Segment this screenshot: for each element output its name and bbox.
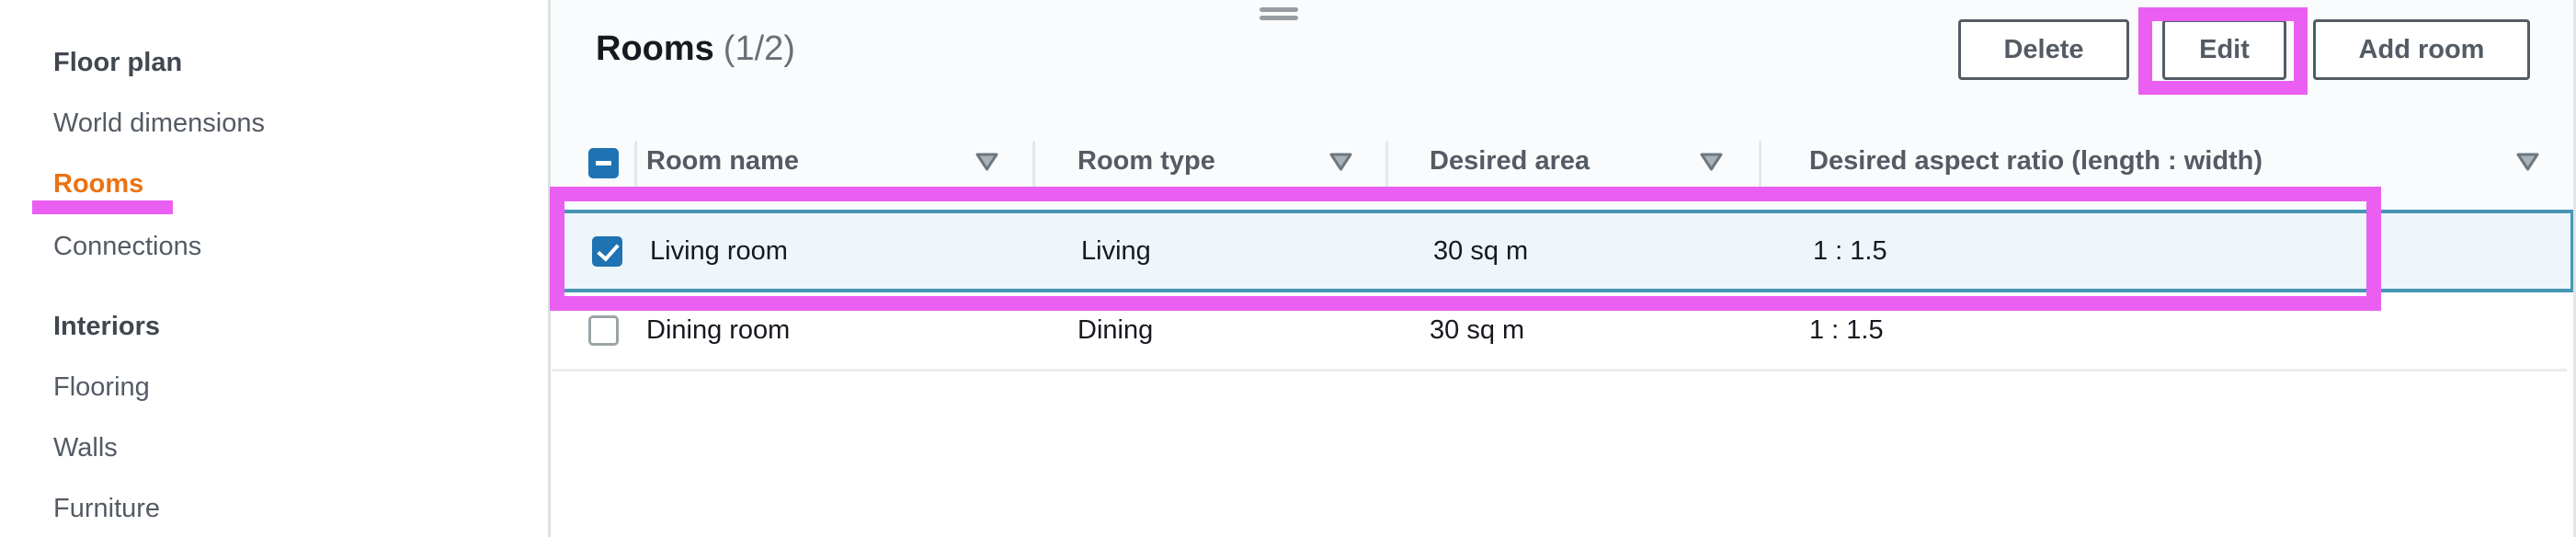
column-separator (634, 141, 637, 189)
sidebar-item-walls[interactable]: Walls (53, 431, 118, 464)
cell-room-type: Dining (1077, 315, 1153, 346)
page-title: Rooms(1/2) (596, 29, 795, 69)
edit-button[interactable]: Edit (2162, 19, 2286, 80)
sidebar-heading-interiors: Interiors (53, 310, 160, 343)
cell-aspect-ratio: 1 : 1.5 (1809, 315, 1884, 346)
add-room-button[interactable]: Add room (2313, 19, 2530, 80)
row-checkbox-unchecked[interactable] (588, 315, 619, 346)
table-row-dining-room[interactable]: Dining room Dining 30 sq m 1 : 1.5 (552, 292, 2567, 371)
triangle-down-icon[interactable] (1328, 152, 1353, 172)
sidebar-heading-floor-plan: Floor plan (53, 46, 182, 79)
cell-desired-area: 30 sq m (1430, 315, 1524, 346)
sidebar-navigation: Floor plan World dimensions Rooms Connec… (0, 0, 549, 537)
rooms-panel: Rooms(1/2) Delete Edit Add room Room nam… (552, 0, 2576, 537)
sidebar-item-flooring[interactable]: Flooring (53, 371, 150, 404)
page-title-text: Rooms (596, 29, 714, 68)
column-header-room-type[interactable]: Room type (1077, 146, 1215, 177)
sidebar-item-connections[interactable]: Connections (53, 230, 201, 263)
table-header-row: Room name Room type Desired area Desired… (552, 133, 2576, 195)
sidebar-item-furniture[interactable]: Furniture (53, 492, 160, 525)
cell-aspect-ratio: 1 : 1.5 (1813, 236, 1887, 267)
column-separator (1385, 141, 1388, 189)
column-header-room-name[interactable]: Room name (646, 146, 799, 177)
cell-room-name: Dining room (646, 315, 790, 346)
cell-room-name: Living room (650, 236, 788, 267)
column-separator (1032, 141, 1035, 189)
table-row-living-room[interactable]: Living room Living 30 sq m 1 : 1.5 (552, 210, 2574, 292)
annotation-highlight-rooms-underline (32, 200, 173, 214)
cell-desired-area: 30 sq m (1433, 236, 1528, 267)
delete-button[interactable]: Delete (1958, 19, 2129, 80)
page-title-counter: (1/2) (724, 29, 795, 68)
select-all-checkbox[interactable] (588, 148, 619, 178)
column-header-desired-area[interactable]: Desired area (1430, 146, 1590, 177)
column-separator (1759, 141, 1761, 189)
sidebar-item-rooms[interactable]: Rooms (53, 167, 143, 200)
sidebar-main-divider (548, 0, 551, 537)
triangle-down-icon[interactable] (2515, 152, 2540, 172)
column-header-aspect-ratio[interactable]: Desired aspect ratio (length : width) (1809, 146, 2263, 177)
triangle-down-icon[interactable] (975, 152, 999, 172)
split-panel-drag-handle-icon[interactable] (1260, 7, 1298, 22)
sidebar-item-world-dimensions[interactable]: World dimensions (53, 107, 265, 140)
triangle-down-icon[interactable] (1699, 152, 1724, 172)
cell-room-type: Living (1081, 236, 1151, 267)
row-checkbox-checked[interactable] (592, 236, 622, 267)
